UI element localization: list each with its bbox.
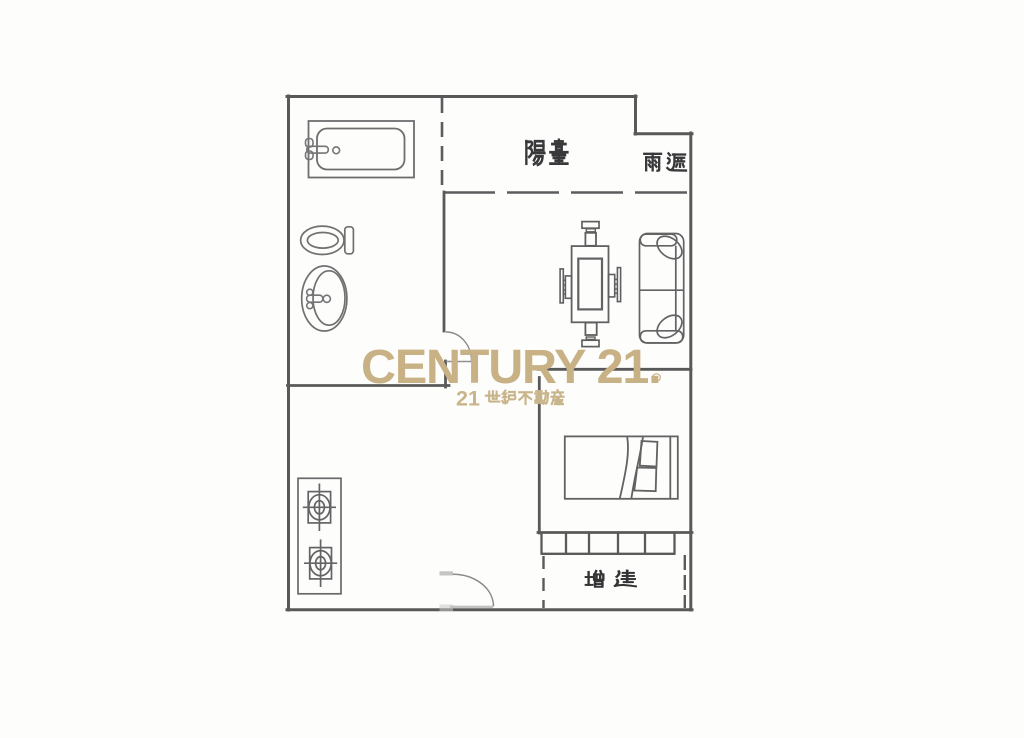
svg-text:CENTURY 21.: CENTURY 21. (361, 340, 660, 394)
svg-text:21: 21 (456, 386, 480, 410)
